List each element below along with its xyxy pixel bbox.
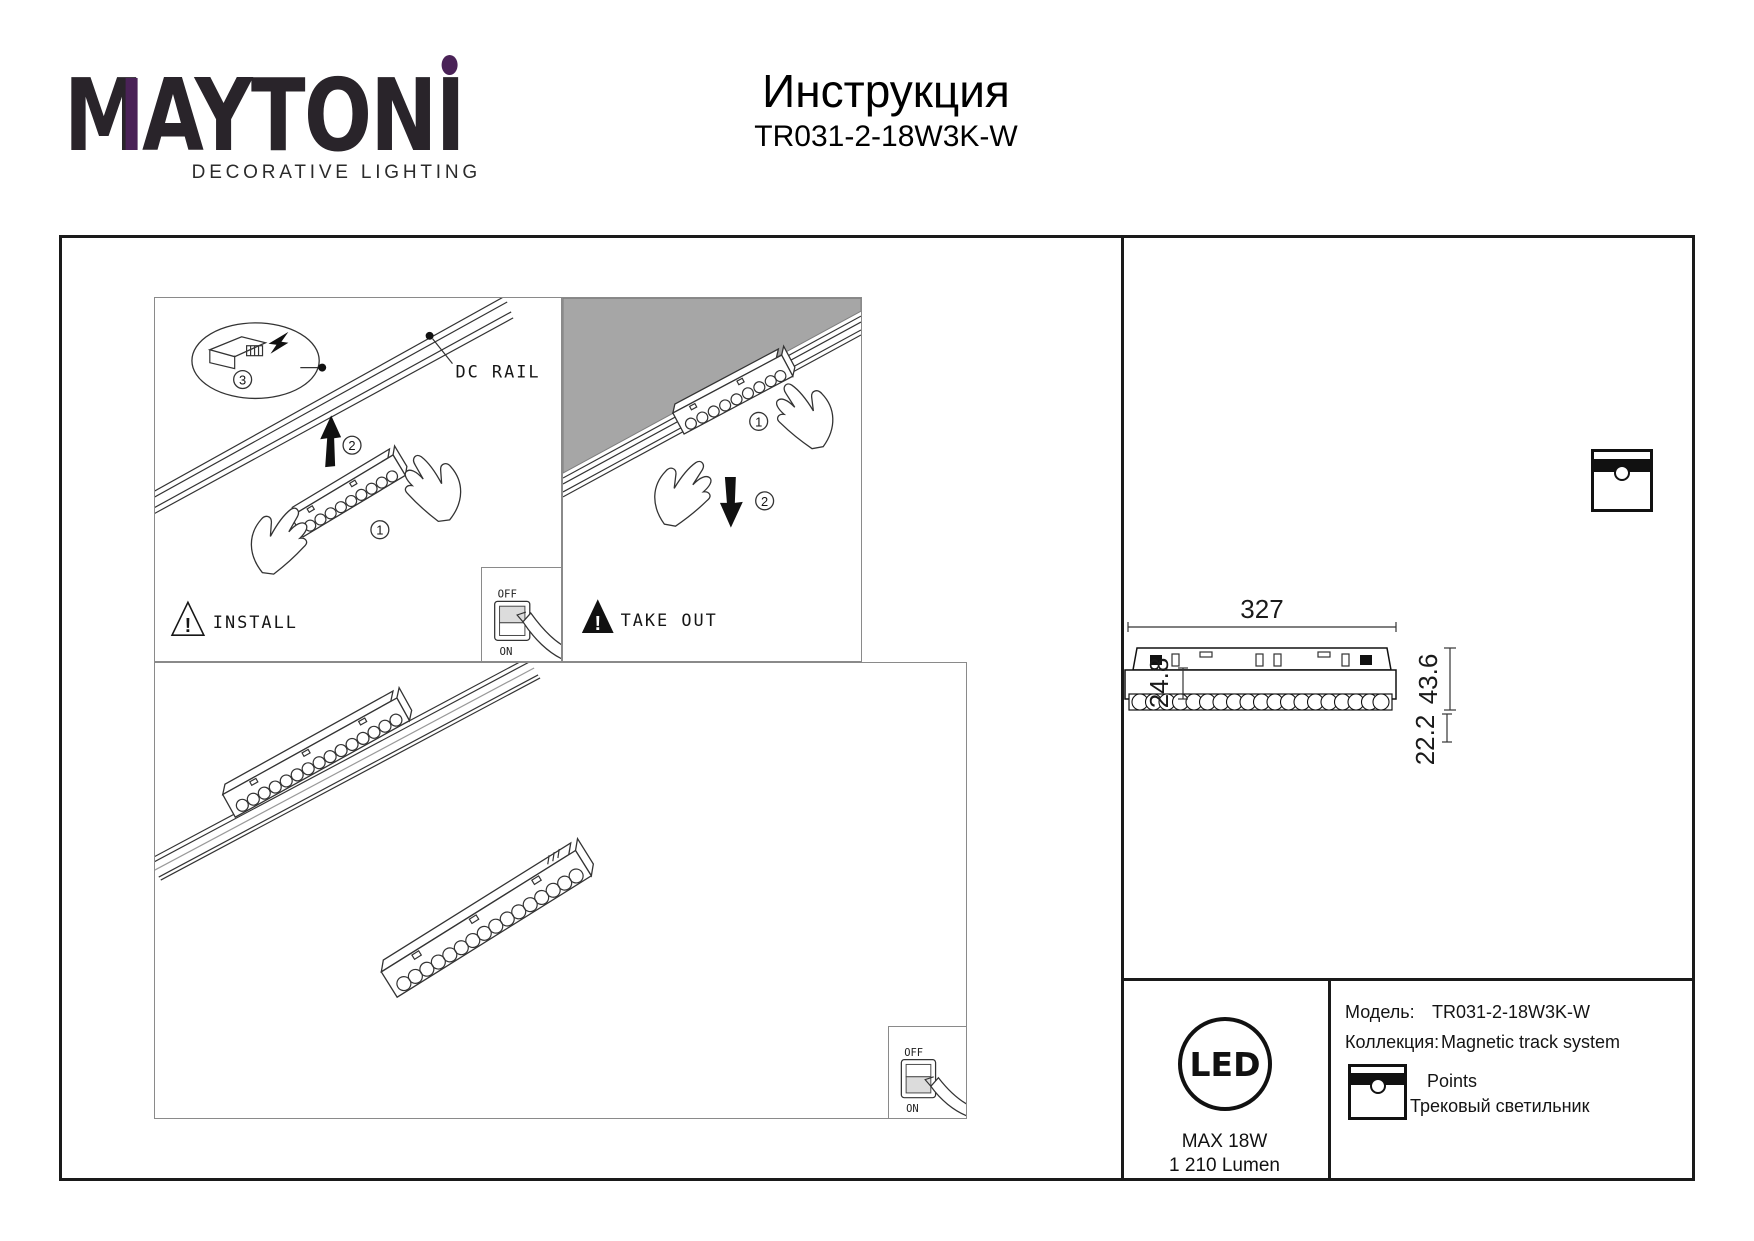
switch-off-label: OFF (498, 587, 517, 600)
title-block: Инструкция TR031-2-18W3K-W (754, 64, 1017, 154)
brand-letter-m: M (64, 66, 142, 166)
body-height-value: 24.8 (1144, 658, 1174, 709)
icon-lens-dot (1614, 465, 1630, 481)
main-vertical-divider (1121, 238, 1124, 1178)
left-hand-icon (652, 461, 715, 528)
rail-callout-dot (426, 332, 434, 340)
brand-letter-i: I (436, 66, 464, 166)
info-top-divider (1121, 978, 1692, 981)
overview-panel (154, 662, 967, 1119)
max-power-label: MAX 18W (1121, 1131, 1328, 1153)
up-arrow-icon (320, 415, 341, 467)
step-2-badge: 2 (761, 494, 768, 509)
model-row-label: Модель: (1345, 1002, 1415, 1023)
off-switch-illustration: OFF ON (482, 568, 561, 661)
depth-dimension: 22.2 (1410, 714, 1452, 765)
mounted-fixture-illustration (219, 688, 416, 818)
total-height-value: 43.6 (1413, 654, 1443, 705)
series-name-label: Points (1427, 1071, 1477, 1092)
detached-fixture-illustration (376, 838, 598, 997)
length-value: 327 (1240, 594, 1283, 624)
warning-exclamation: ! (594, 613, 601, 635)
info-cell-divider (1328, 978, 1331, 1178)
connector-detail-callout: 3 (192, 323, 326, 399)
power-on-switch-box: OFF ON (888, 1026, 967, 1119)
icon-lens-dot (1370, 1078, 1386, 1094)
overview-illustration (155, 663, 966, 1118)
install-label: INSTALL (213, 612, 298, 632)
down-arrow-icon (720, 477, 743, 528)
logo-i-dot-icon (442, 55, 458, 75)
brand-letters-mid: AYTON (142, 57, 436, 174)
collection-row-value: Magnetic track system (1441, 1032, 1620, 1053)
maytoni-logo: MAYTONI DECORATIVE LIGHTING (64, 66, 488, 186)
icon-track-band (1594, 459, 1650, 472)
switch-off-label: OFF (904, 1047, 923, 1059)
take-out-label: TAKE OUT (621, 610, 718, 630)
led-label: LED (1190, 1045, 1261, 1084)
take-out-panel: 1 2 ! TAKE OUT (562, 297, 862, 662)
icon-top-strip (1594, 452, 1650, 459)
document-model-code: TR031-2-18W3K-W (754, 120, 1017, 154)
dc-rail-label: DC RAIL (455, 362, 540, 382)
brand-wordmark: MAYTONI (64, 66, 403, 166)
content-frame: DC RAIL 3 (59, 235, 1695, 1181)
on-switch-illustration: OFF ON (889, 1027, 966, 1118)
step-3-badge: 3 (239, 373, 246, 388)
length-dimension: 327 (1128, 594, 1396, 632)
logo-accent-bar (126, 78, 138, 150)
product-type-label: Трековый светильник (1410, 1096, 1589, 1117)
series-profile-icon (1348, 1064, 1407, 1120)
step-1-badge: 1 (376, 523, 383, 538)
instruction-sheet: MAYTONI DECORATIVE LIGHTING Инструкция T… (0, 0, 1754, 1241)
depth-value: 22.2 (1410, 715, 1440, 766)
brand-tagline: DECORATIVE LIGHTING (64, 162, 481, 184)
track-rail-drawing (155, 663, 540, 880)
fixture-illustration (287, 446, 410, 537)
warning-exclamation: ! (185, 615, 192, 637)
power-off-switch-box: OFF ON (481, 567, 562, 662)
take-out-illustration: 1 2 ! TAKE OUT (563, 298, 861, 661)
dimension-drawing: 327 (1125, 590, 1460, 775)
right-hand-icon (773, 383, 836, 450)
fixture-profile-icon (1591, 449, 1653, 512)
collection-row-label: Коллекция: (1345, 1032, 1439, 1053)
right-hand-icon (399, 454, 465, 524)
luminous-flux-label: 1 210 Lumen (1121, 1155, 1328, 1177)
document-title: Инструкция (754, 64, 1017, 119)
switch-on-label: ON (500, 645, 513, 658)
step-1-badge: 1 (755, 414, 762, 429)
switch-on-label: ON (906, 1103, 919, 1115)
led-badge: LED (1178, 1017, 1272, 1111)
model-row-value: TR031-2-18W3K-W (1432, 1002, 1590, 1023)
pressing-finger-icon (931, 1078, 966, 1117)
total-height-dimension: 43.6 (1413, 648, 1456, 710)
icon-track-band (1351, 1073, 1404, 1085)
step-2-badge: 2 (348, 438, 355, 453)
